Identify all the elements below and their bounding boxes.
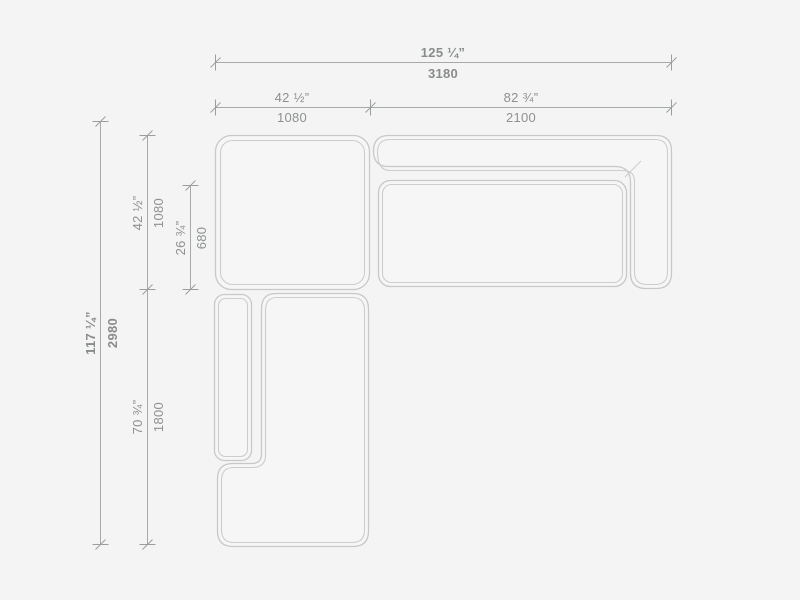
overall-depth-inches-label: 117 ¼” (83, 311, 98, 355)
right-width-mm-label: 2100 (506, 110, 536, 125)
sofa-seat-cushion-outline (379, 181, 627, 287)
overall-width-mm-label: 3180 (428, 66, 458, 81)
dim-segment-widths: 42 ½” 1080 82 ¾” 2100 (211, 90, 677, 125)
dim-seat-depth: 26 ¾” 680 (173, 181, 209, 295)
furniture-plan (215, 136, 672, 547)
sofa-module (374, 136, 672, 289)
chaise-module (215, 294, 369, 547)
dim-corner-depth: 42 ½” 1080 (130, 131, 166, 295)
chaise-armrest-outline (215, 295, 252, 461)
sectional-sofa-dimension-drawing: 125 ¼” 3180 42 ½” 1080 82 ¾” 2100 117 ¼”… (0, 0, 800, 600)
overall-depth-mm-label: 2980 (105, 318, 120, 348)
left-width-mm-label: 1080 (277, 110, 307, 125)
corner-module-outline (216, 136, 370, 290)
overall-width-inches-label: 125 ¼” (421, 45, 465, 60)
corner-depth-mm-label: 1080 (151, 198, 166, 228)
dimension-lines: 125 ¼” 3180 42 ½” 1080 82 ¾” 2100 117 ¼”… (83, 45, 677, 550)
dim-overall-width: 125 ¼” 3180 (211, 45, 677, 81)
dim-chaise-length: 70 ¾” 1800 (130, 290, 166, 550)
corner-module (216, 136, 370, 290)
seat-depth-mm-label: 680 (194, 227, 209, 250)
seat-depth-inches-label: 26 ¾” (173, 221, 188, 256)
left-width-inches-label: 42 ½” (275, 90, 310, 105)
chaise-length-mm-label: 1800 (151, 402, 166, 432)
chaise-length-inches-label: 70 ¾” (130, 400, 145, 435)
corner-depth-inches-label: 42 ½” (130, 196, 145, 231)
dimension-drawing-canvas: 125 ¼” 3180 42 ½” 1080 82 ¾” 2100 117 ¼”… (0, 0, 800, 600)
dim-overall-depth: 117 ¼” 2980 (83, 117, 120, 550)
right-width-inches-label: 82 ¾” (504, 90, 539, 105)
